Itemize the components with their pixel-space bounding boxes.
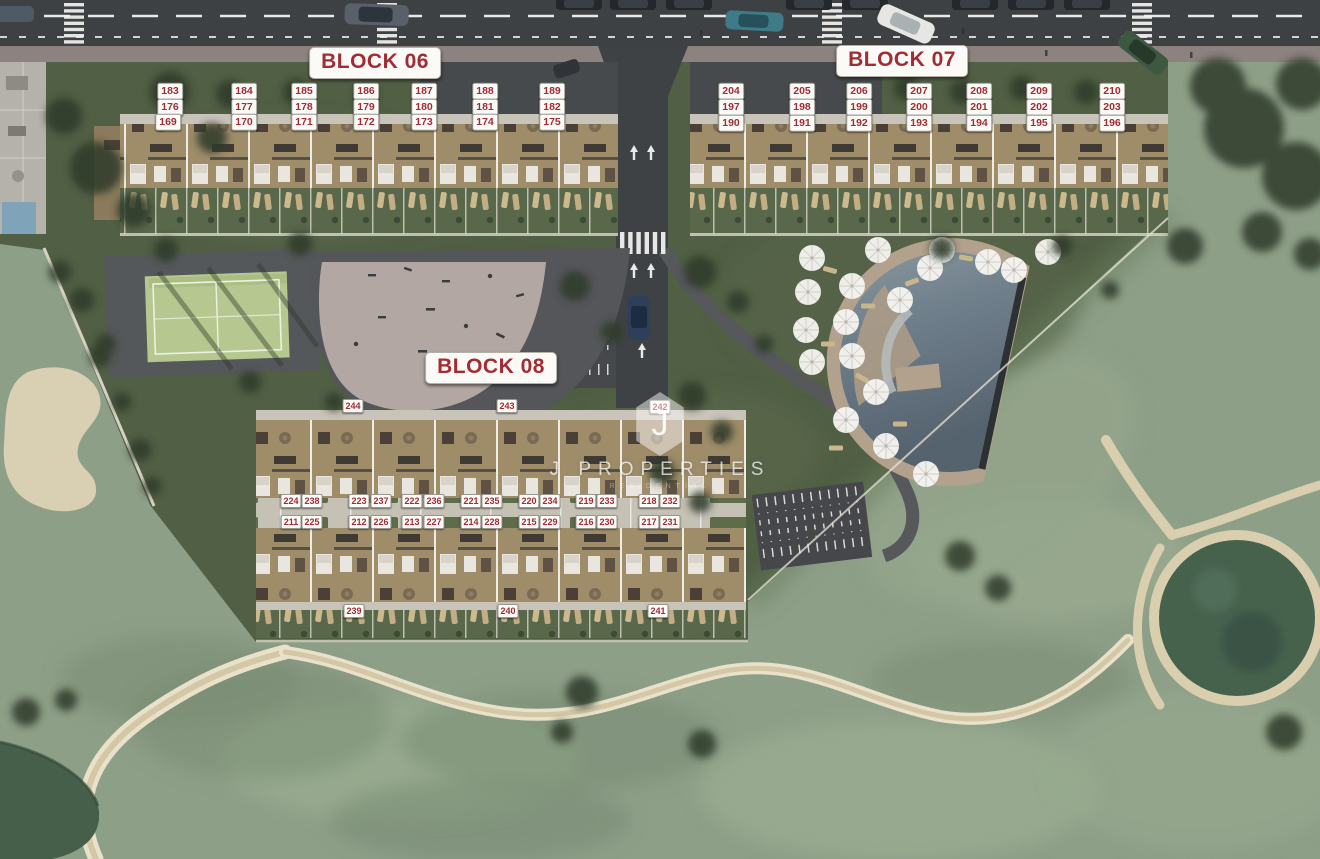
unit-label-184[interactable]: 184 [231, 83, 257, 100]
unit-label-213[interactable]: 213 [401, 515, 422, 529]
block-07-label: BLOCK 07 [836, 45, 968, 77]
unit-label-211[interactable]: 211 [281, 515, 302, 529]
unit-label-195[interactable]: 195 [1026, 115, 1052, 132]
unit-label-203[interactable]: 203 [1099, 99, 1125, 116]
unit-label-216[interactable]: 216 [575, 515, 596, 529]
unit-label-215[interactable]: 215 [518, 515, 539, 529]
unit-label-191[interactable]: 191 [789, 115, 815, 132]
unit-label-240[interactable]: 240 [497, 604, 518, 618]
unit-label-171[interactable]: 171 [291, 114, 317, 131]
unit-label-217[interactable]: 217 [638, 515, 659, 529]
unit-label-188[interactable]: 188 [472, 83, 498, 100]
unit-label-196[interactable]: 196 [1099, 115, 1125, 132]
unit-label-198[interactable]: 198 [789, 99, 815, 116]
labels-layer: 1831841851861871881891761771781791801811… [0, 0, 1320, 859]
unit-label-199[interactable]: 199 [846, 99, 872, 116]
unit-label-174[interactable]: 174 [472, 114, 498, 131]
unit-label-226[interactable]: 226 [370, 515, 391, 529]
unit-label-186[interactable]: 186 [353, 83, 379, 100]
unit-label-206[interactable]: 206 [846, 83, 872, 100]
unit-label-201[interactable]: 201 [966, 99, 992, 116]
unit-label-228[interactable]: 228 [481, 515, 502, 529]
unit-label-214[interactable]: 214 [460, 515, 481, 529]
unit-label-183[interactable]: 183 [157, 83, 183, 100]
unit-label-222[interactable]: 222 [401, 494, 422, 508]
unit-label-243[interactable]: 243 [496, 399, 517, 413]
unit-label-220[interactable]: 220 [518, 494, 539, 508]
unit-label-208[interactable]: 208 [966, 83, 992, 100]
unit-label-223[interactable]: 223 [348, 494, 369, 508]
unit-label-233[interactable]: 233 [596, 494, 617, 508]
unit-label-193[interactable]: 193 [906, 115, 932, 132]
block-06-label: BLOCK 06 [309, 47, 441, 79]
unit-label-224[interactable]: 224 [280, 494, 301, 508]
unit-label-244[interactable]: 244 [342, 399, 363, 413]
unit-label-232[interactable]: 232 [659, 494, 680, 508]
unit-label-175[interactable]: 175 [539, 114, 565, 131]
unit-label-212[interactable]: 212 [348, 515, 369, 529]
unit-label-236[interactable]: 236 [423, 494, 444, 508]
unit-label-185[interactable]: 185 [291, 83, 317, 100]
unit-label-207[interactable]: 207 [906, 83, 932, 100]
unit-label-172[interactable]: 172 [353, 114, 379, 131]
unit-label-190[interactable]: 190 [718, 115, 744, 132]
unit-label-169[interactable]: 169 [155, 114, 181, 131]
unit-label-173[interactable]: 173 [411, 114, 437, 131]
unit-label-170[interactable]: 170 [231, 114, 257, 131]
unit-label-231[interactable]: 231 [659, 515, 680, 529]
unit-label-187[interactable]: 187 [411, 83, 437, 100]
unit-label-210[interactable]: 210 [1099, 83, 1125, 100]
masterplan-canvas: 1831841851861871881891761771781791801811… [0, 0, 1320, 859]
unit-label-202[interactable]: 202 [1026, 99, 1052, 116]
unit-label-209[interactable]: 209 [1026, 83, 1052, 100]
unit-label-234[interactable]: 234 [539, 494, 560, 508]
unit-label-238[interactable]: 238 [301, 494, 322, 508]
unit-label-219[interactable]: 219 [575, 494, 596, 508]
unit-label-237[interactable]: 237 [370, 494, 391, 508]
unit-label-189[interactable]: 189 [539, 83, 565, 100]
block-08-label: BLOCK 08 [425, 352, 557, 384]
unit-label-205[interactable]: 205 [789, 83, 815, 100]
unit-label-229[interactable]: 229 [539, 515, 560, 529]
unit-label-239[interactable]: 239 [343, 604, 364, 618]
unit-label-230[interactable]: 230 [596, 515, 617, 529]
unit-label-192[interactable]: 192 [846, 115, 872, 132]
unit-label-194[interactable]: 194 [966, 115, 992, 132]
unit-label-227[interactable]: 227 [423, 515, 444, 529]
unit-label-235[interactable]: 235 [481, 494, 502, 508]
unit-label-200[interactable]: 200 [906, 99, 932, 116]
unit-label-218[interactable]: 218 [638, 494, 659, 508]
unit-label-242[interactable]: 242 [649, 400, 670, 414]
unit-label-197[interactable]: 197 [718, 99, 744, 116]
unit-label-221[interactable]: 221 [460, 494, 481, 508]
unit-label-204[interactable]: 204 [718, 83, 744, 100]
unit-label-225[interactable]: 225 [301, 515, 322, 529]
unit-label-241[interactable]: 241 [647, 604, 668, 618]
